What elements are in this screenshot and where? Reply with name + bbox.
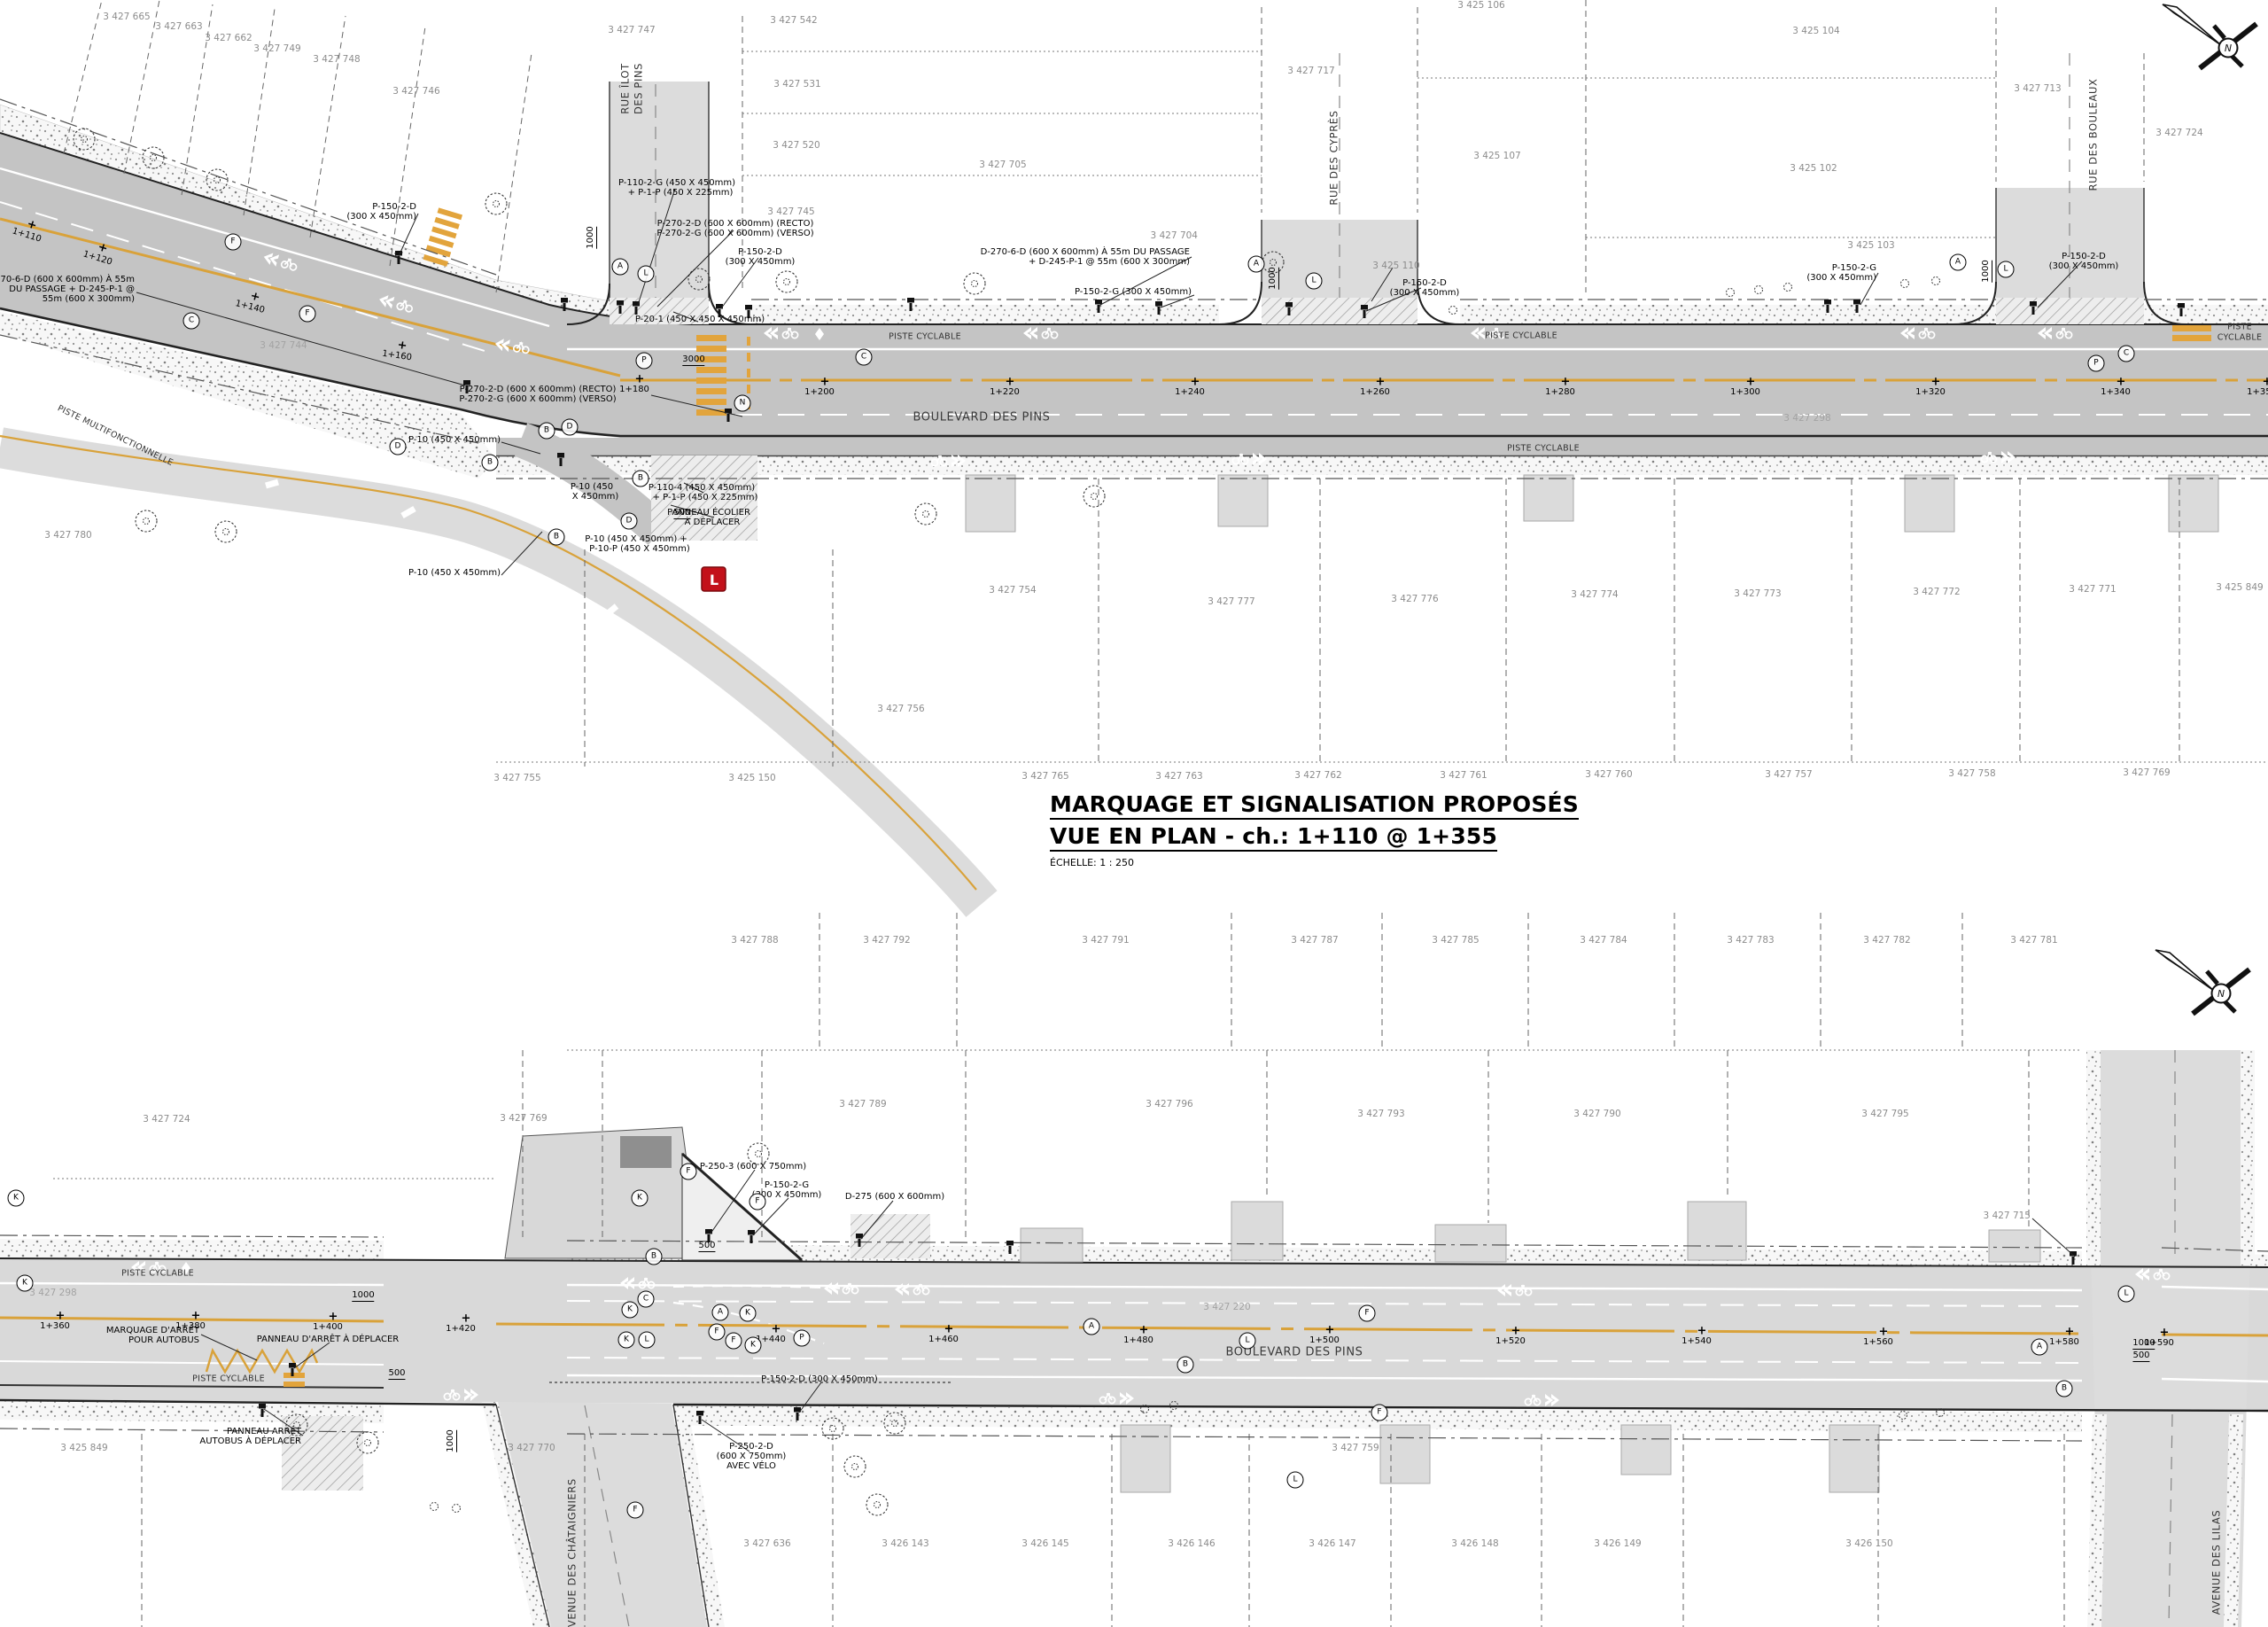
sign-annotation: + P-1-P (450 X 225mm) [653,494,758,502]
lot-number: 3 427 773 [1734,589,1781,599]
reference-marker-f: F [299,306,316,323]
lot-number: 3 427 772 [1913,588,1960,597]
sign-annotation: D-270-6-D (600 X 600mm) À 55m [0,276,135,284]
lot-number: 3 426 148 [1451,1539,1498,1549]
road-name: BOULEVARD DES PINS [913,412,1050,424]
lot-number: 3 427 782 [1863,936,1910,946]
lot-number: 3 427 783 [1727,936,1774,946]
reference-marker-f: F [726,1333,742,1350]
chainage-tick: + [1325,1325,1335,1336]
street-name: AVENUE DES LILAS [2211,1510,2222,1615]
lot-number: 3 427 795 [1861,1109,1908,1119]
chainage-label: 1+400 [313,1323,343,1332]
lot-number: 3 427 769 [500,1114,547,1124]
chainage-label: 1+320 [1915,388,1946,397]
chainage-tick: + [2160,1327,2170,1339]
lot-number: 3 426 145 [1021,1539,1068,1549]
lot-number: 3 427 745 [767,207,814,217]
title-block: MARQUAGE ET SIGNALISATION PROPOSÉS VUE E… [1050,791,1579,868]
lot-number: 3 427 758 [1948,769,1995,779]
lot-number: 3 427 763 [1155,772,1202,782]
sign-annotation: P-10 (450 [571,483,613,492]
sign-annotation: AVEC VÉLO [726,1462,776,1471]
lot-number: 3 426 149 [1594,1539,1641,1549]
reference-marker-l: L [2118,1286,2135,1303]
lot-number: 3 426 150 [1845,1539,1892,1549]
lot-number: 3 425 849 [2216,583,2263,593]
reference-marker-d: D [621,513,638,530]
lot-number: 3 427 762 [1294,771,1341,781]
sign-annotation: P-150-2-D [372,203,416,212]
sign-annotation: 1000 [586,226,597,248]
path-label: PISTE CYCLABLE [889,332,961,341]
chainage-tick: + [462,1313,471,1325]
street-name: DES PINS [633,63,644,114]
lot-number: 3 425 150 [728,774,775,783]
chainage-tick: + [1931,377,1941,388]
lot-number: 3 427 542 [770,16,817,26]
sign-annotation: (600 X 750mm) [717,1452,787,1461]
street-name: AVENUE DES CHÂTAIGNIERS [567,1478,578,1627]
sign-annotation: 500 [698,1242,715,1252]
reference-marker-l: L [1239,1333,1256,1350]
sign-annotation: POUR AUTOBUS [128,1336,199,1345]
reference-marker-c: C [183,313,200,330]
chainage-label: 1+360 [40,1322,70,1331]
reference-marker-f: F [750,1194,766,1211]
lot-number: 3 427 791 [1082,936,1129,946]
lot-number: 3 427 756 [877,705,924,714]
title-line-2: VUE EN PLAN - ch.: 1+110 @ 1+355 [1050,823,1497,852]
sign-annotation: P-150-2-G (300 X 450mm) [1075,288,1192,297]
lot-number: 3 427 765 [1021,772,1068,782]
reference-marker-b: B [482,455,499,471]
chainage-label: 1+540 [1682,1337,1712,1346]
chainage-tick: + [1191,377,1200,388]
chainage-label: 1+420 [446,1325,476,1334]
reference-marker-l: L [639,1332,656,1349]
sign-annotation: P-270-2-D (600 X 600mm) (RECTO) [657,220,814,229]
chainage-label: 1+480 [1123,1336,1153,1345]
chainage-tick: + [1139,1325,1149,1336]
lot-number: 3 427 298 [29,1288,76,1298]
path-label: PISTE CYCLABLE [1507,444,1580,453]
street-name: RUE DES CYPRÈS [1329,110,1340,205]
sign-annotation: PANNEAU D'ARRÊT À DÉPLACER [257,1335,399,1344]
reference-marker-a: A [1084,1319,1100,1335]
lot-number: 3 425 849 [60,1444,107,1453]
reference-marker-f: F [1359,1305,1376,1322]
chainage-tick: + [191,1311,201,1322]
reference-marker-p: P [636,353,653,370]
chainage-label: 1+340 [2101,388,2131,397]
reference-marker-c: C [638,1291,655,1308]
lot-number: 3 427 663 [155,22,202,32]
sign-annotation: D-275 (600 X 600mm) [845,1193,944,1202]
chainage-label: 1+200 [804,388,835,397]
chainage-label: 1+500 [1309,1336,1340,1345]
sign-annotation: P-20-1 (450 X 450 X 450mm) [635,315,765,324]
lot-number: 3 427 704 [1151,231,1198,241]
sign-annotation: P-110-4 (450 X 450mm) [649,484,755,493]
lot-number: 3 427 531 [773,80,820,90]
lot-number: 3 427 759 [1332,1444,1379,1453]
sign-annotation: 1000 [447,1429,457,1452]
sign-annotation: 1000 [1982,260,1992,282]
chainage-tick: + [329,1312,338,1323]
lot-number: 3 425 103 [1847,241,1894,251]
lot-number: 3 427 760 [1585,770,1632,780]
chainage-tick: + [249,290,261,303]
lot-number: 3 427 755 [493,774,540,783]
lot-number: 3 427 754 [989,586,1036,596]
reference-marker-k: K [740,1305,757,1322]
reference-marker-k: K [8,1190,25,1207]
lot-number: 3 426 147 [1309,1539,1355,1549]
reference-marker-l: L [1287,1472,1304,1489]
lot-number: 3 425 110 [1372,261,1419,271]
chainage-tick: + [2263,377,2268,388]
chainage-tick: + [397,339,408,352]
reference-marker-f: F [680,1164,697,1180]
reference-marker-d: D [390,439,407,455]
lot-number: 3 427 724 [143,1115,190,1125]
street-name: RUE DES BOULEAUX [2088,79,2099,191]
sign-annotation: (300 X 450mm) [1806,274,1876,283]
sign-annotation: P-270-2-G (600 X 600mm) (VERSO) [656,230,813,238]
reference-marker-p: P [2088,355,2105,372]
path-label: CYCLABLE [2218,333,2263,342]
sign-annotation: 500 [388,1369,405,1380]
chainage-tick: + [56,1311,66,1322]
path-label: PISTE MULTIFONCTIONNELLE [56,404,175,468]
sign-annotation: P-110-2-G (450 X 450mm) [618,179,735,188]
reference-marker-l: L [1998,261,2015,278]
chainage-label: 1+355 [2247,388,2268,397]
sign-annotation: P-250-2-D [729,1443,773,1452]
sign-annotation: (300 X 450mm) [1390,289,1460,298]
reference-marker-b: B [633,471,649,487]
title-scale: ÉCHELLE: 1 : 250 [1050,857,1579,868]
chainage-tick: + [772,1324,781,1335]
sign-annotation: À DÉPLACER [685,518,741,527]
sign-annotation: 1000 [1269,267,1279,289]
lot-number: 3 427 784 [1580,936,1627,946]
chainage-tick: + [2117,377,2126,388]
lot-number: 3 427 757 [1765,770,1812,780]
chainage-tick: + [1697,1326,1707,1337]
sign-annotation: P-150-2-D [1402,279,1447,288]
chainage-label: 1+580 [2049,1338,2079,1347]
chainage-tick: + [26,218,38,232]
lot-number: 3 427 776 [1391,595,1438,604]
sign-annotation: P-270-2-G (600 X 600mm) (VERSO) [459,395,616,404]
lot-number: 3 427 774 [1571,590,1618,600]
lot-number: 3 427 785 [1432,936,1479,946]
sign-annotation: + D-245-P-1 @ 55m (600 X 300mm) [1029,258,1190,267]
sign-annotation: P-150-2-G [1832,264,1876,273]
reference-marker-n: N [734,395,751,412]
path-label: PISTE CYCLABLE [121,1269,194,1278]
chainage-tick: + [97,241,109,255]
sign-annotation: P-150-2-G [765,1181,809,1190]
reference-marker-c: C [2118,346,2135,362]
chainage-label: 1+180 [619,385,649,394]
reference-marker-c: C [856,349,873,366]
reference-marker-f: F [225,234,242,251]
street-name: RUE ÎLOT [620,63,631,114]
sign-annotation: P-10-P (450 X 450mm) [589,545,690,554]
lot-number: 3 427 771 [2069,585,2116,595]
lot-number: 3 427 220 [1203,1303,1250,1312]
sign-annotation: 55m (600 X 300mm) [43,295,135,304]
chainage-label: 1+260 [1360,388,1390,397]
chainage-label: 1+160 [382,350,413,363]
sign-annotation: P-10 (450 X 450mm) + [585,535,687,544]
sign-annotation: P-270-2-D (600 X 600mm) (RECTO) [460,385,617,394]
chainage-label: 1+300 [1730,388,1760,397]
lot-number: 3 427 748 [313,55,360,65]
lot-number: 3 425 107 [1473,152,1520,161]
lot-number: 3 427 749 [253,44,300,54]
reference-marker-k: K [17,1275,34,1292]
chainage-tick: + [1006,377,1015,388]
chainage-label: 1+220 [990,388,1020,397]
lot-number: 3 427 770 [508,1444,555,1453]
reference-marker-a: A [712,1304,729,1321]
sign-annotation: P-150-2-D [2062,253,2106,261]
lot-number: 3 427 792 [863,936,910,946]
chainage-tick: + [2065,1327,2075,1338]
lot-number: 3 427 662 [205,34,252,43]
reference-marker-k: K [622,1302,639,1319]
chainage-label: 1+590 [2144,1339,2174,1348]
lot-number: 3 425 104 [1792,27,1839,36]
reference-marker-k: K [745,1337,762,1354]
reference-marker-k: K [618,1332,635,1349]
chainage-tick: + [944,1324,954,1335]
reference-marker-l: L [638,266,655,283]
sign-annotation: 500 [673,509,690,519]
reference-marker-f: F [709,1324,726,1341]
reference-marker-b: B [646,1249,663,1265]
lot-number: 3 427 705 [979,160,1026,170]
reference-marker-k: K [632,1190,649,1207]
lot-number: 3 427 761 [1440,771,1487,781]
sign-annotation: + P-1-P (450 X 225mm) [628,189,734,198]
chainage-label: 1+520 [1495,1337,1526,1346]
sign-annotation: (300 X 450mm) [2049,262,2119,271]
sign-annotation: 3000 [682,355,704,366]
sign-annotation: AUTOBUS À DÉPLACER [199,1437,301,1446]
lot-number: 3 427 298 [1783,414,1830,424]
sign-annotation: 500 [2132,1351,2149,1362]
lot-number: 3 427 781 [2010,936,2057,946]
reference-marker-a: A [1950,254,1967,271]
path-label: PISTE CYCLABLE [1485,331,1557,340]
path-label: PISTE [2227,323,2252,331]
lot-number: 3 427 793 [1357,1109,1404,1119]
reference-marker-b: B [2056,1381,2073,1397]
lot-number: 3 425 106 [1457,1,1504,11]
chainage-label: 1+240 [1175,388,1205,397]
sign-annotation: (300 X 450mm) [346,213,416,222]
reference-marker-f: F [1371,1405,1388,1421]
sign-annotation: D-270-6-D (600 X 600mm) À 55m DU PASSAGE [981,248,1190,257]
lot-number: 3 427 769 [2123,768,2170,778]
sign-annotation: P-10 (450 X 450mm) [408,436,501,445]
reference-marker-b: B [539,423,555,440]
lot-number: 3 427 744 [260,341,307,351]
reference-marker-a: A [1248,256,1265,273]
lot-number: 3 427 790 [1573,1109,1620,1119]
chainage-tick: + [1511,1326,1521,1337]
lot-number: 3 427 717 [1287,66,1334,76]
lot-number: 3 427 520 [773,141,819,151]
reference-marker-b: B [1177,1357,1194,1374]
reference-marker-f: F [627,1502,644,1519]
lot-number: 3 427 796 [1146,1100,1192,1109]
lot-number: 3 427 715 [1984,1211,2031,1221]
lot-number: 3 427 746 [392,87,439,97]
reference-marker-l: L [1306,273,1323,290]
sign-annotation: 1000 [352,1291,374,1302]
lot-number: 3 427 665 [103,12,150,22]
reference-marker-p: P [794,1330,811,1347]
sign-annotation: PANNEAU ARRÊT [227,1428,301,1436]
lot-number: 3 427 787 [1291,936,1338,946]
sign-annotation: P-250-3 (600 X 750mm) [700,1163,806,1172]
reference-marker-a: A [612,259,629,276]
lot-number: 3 427 724 [2155,128,2202,138]
lot-number: 3 427 713 [2014,84,2061,94]
lot-number: 3 427 780 [44,531,91,541]
sign-annotation: P-10 (450 X 450mm) [408,569,501,578]
reference-marker-b: B [548,529,565,546]
title-line-1: MARQUAGE ET SIGNALISATION PROPOSÉS [1050,791,1579,820]
lot-number: 3 427 636 [743,1539,790,1549]
chainage-tick: + [635,374,645,385]
lot-number: 3 427 777 [1208,597,1254,607]
chainage-label: 1+380 [175,1322,206,1331]
lot-number: 3 427 789 [839,1100,886,1109]
lot-number: 3 425 102 [1790,164,1837,174]
reference-marker-a: A [2031,1339,2048,1356]
sign-annotation: (300 X 450mm) [726,258,796,267]
lot-number: 3 426 143 [882,1539,928,1549]
path-label: PISTE CYCLABLE [192,1374,265,1383]
sign-annotation: DU PASSAGE + D-245-P-1 @ [9,285,135,294]
chainage-tick: + [1879,1327,1889,1338]
chainage-label: 1+460 [928,1335,959,1344]
lot-number: 3 426 146 [1168,1539,1215,1549]
chainage-label: 1+280 [1545,388,1575,397]
sign-annotation: P-150-2-D (300 X 450mm) [761,1375,878,1384]
reference-marker-d: D [562,419,579,436]
chainage-tick: + [1376,377,1386,388]
chainage-tick: + [1561,377,1571,388]
sign-annotation: P-150-2-D [738,248,782,257]
plan-canvas: L [0,0,2268,1627]
chainage-label: 1+560 [1863,1338,1893,1347]
sign-annotation: X 450mm) [572,493,619,502]
lot-number: 3 427 788 [731,936,778,946]
lot-number: 3 427 747 [608,26,655,35]
chainage-tick: + [820,377,830,388]
chainage-tick: + [1746,377,1756,388]
